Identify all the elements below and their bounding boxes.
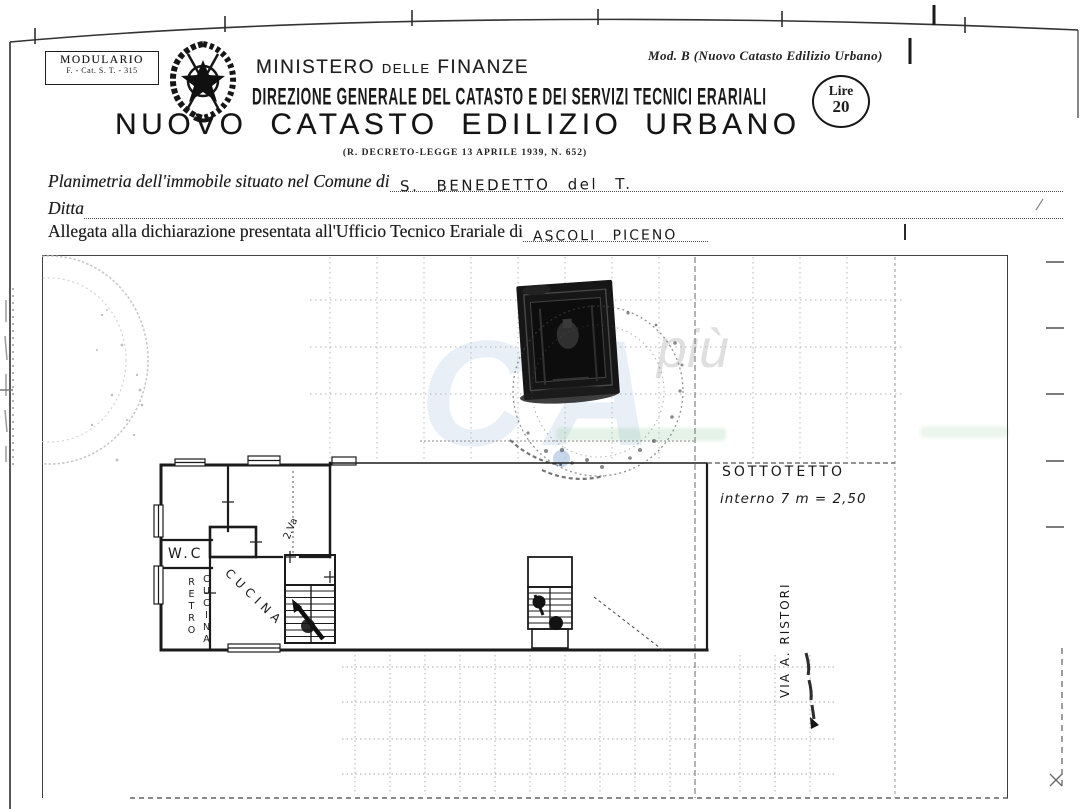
revenue-stamp	[512, 280, 620, 407]
form-line-ufficio: Allegata alla dichiarazione presentata a…	[48, 219, 708, 242]
grid-lower	[342, 655, 837, 795]
ufficio-value: ASCOLI PICENO	[533, 227, 677, 245]
comune-field: S. BENEDETTO del T.	[390, 169, 1063, 192]
right-binding-marks	[1046, 262, 1064, 788]
street-arrow-marks	[806, 653, 819, 729]
comune-label: Planimetria dell'immobile situato nel Co…	[48, 171, 390, 192]
ministry-word1: MINISTERO	[256, 57, 375, 78]
staircase-center	[528, 557, 572, 648]
ufficio-field: ASCOLI PICENO	[523, 219, 708, 242]
faint-round-stamp	[42, 256, 148, 464]
ditta-label: Ditta	[48, 198, 84, 219]
modulario-box: MODULARIO F. - Cat. S. T. - 315	[45, 51, 159, 85]
ministry-word2: DELLE	[382, 61, 431, 76]
apartment-walls	[161, 463, 707, 650]
opening-cross-ticks	[204, 496, 336, 599]
staircase-left	[285, 555, 335, 643]
street-label: VIA A. RISTORI	[778, 553, 792, 698]
comune-value: S. BENEDETTO del T.	[399, 175, 632, 195]
page-subtitle: (R. DECRETO-LEGGE 13 APRILE 1939, N. 652…	[320, 148, 610, 158]
ditta-field	[84, 196, 1063, 219]
mod-b-note: Mod. B (Nuovo Catasto Edilizio Urbano)	[648, 48, 883, 64]
room-label-retro2: CUCINA	[201, 574, 212, 660]
room-label-retro: RETRO	[186, 577, 197, 649]
sottotetto-label: SOTTOTETTO	[722, 464, 845, 480]
sottotetto-note: interno 7 m = 2,50	[720, 491, 867, 507]
floor-plan-drawing	[42, 255, 1008, 809]
lire-amount: 20	[814, 98, 868, 116]
lire-label: Lire	[814, 84, 868, 98]
modulario-line1: MODULARIO	[46, 54, 158, 66]
form-line-ditta: Ditta	[48, 196, 1063, 219]
form-line-comune: Planimetria dell'immobile situato nel Co…	[48, 169, 1063, 192]
left-margin-scan-artifact	[0, 288, 13, 465]
room-label-wc: W.C	[168, 546, 203, 562]
ministry-word3: FINANZE	[437, 57, 529, 78]
ufficio-label: Allegata alla dichiarazione presentata a…	[48, 221, 523, 242]
ministry-title: MINISTERO DELLE FINANZE	[256, 57, 529, 79]
lire-20-stamp: Lire 20	[812, 75, 870, 128]
modulario-line2: F. - Cat. S. T. - 315	[46, 66, 158, 75]
scanned-cadastral-document: MODULARIO F. - Cat. S. T. - 315 MINISTER…	[0, 0, 1092, 809]
page-title: NUOVO CATASTO EDILIZIO URBANO	[115, 108, 801, 142]
